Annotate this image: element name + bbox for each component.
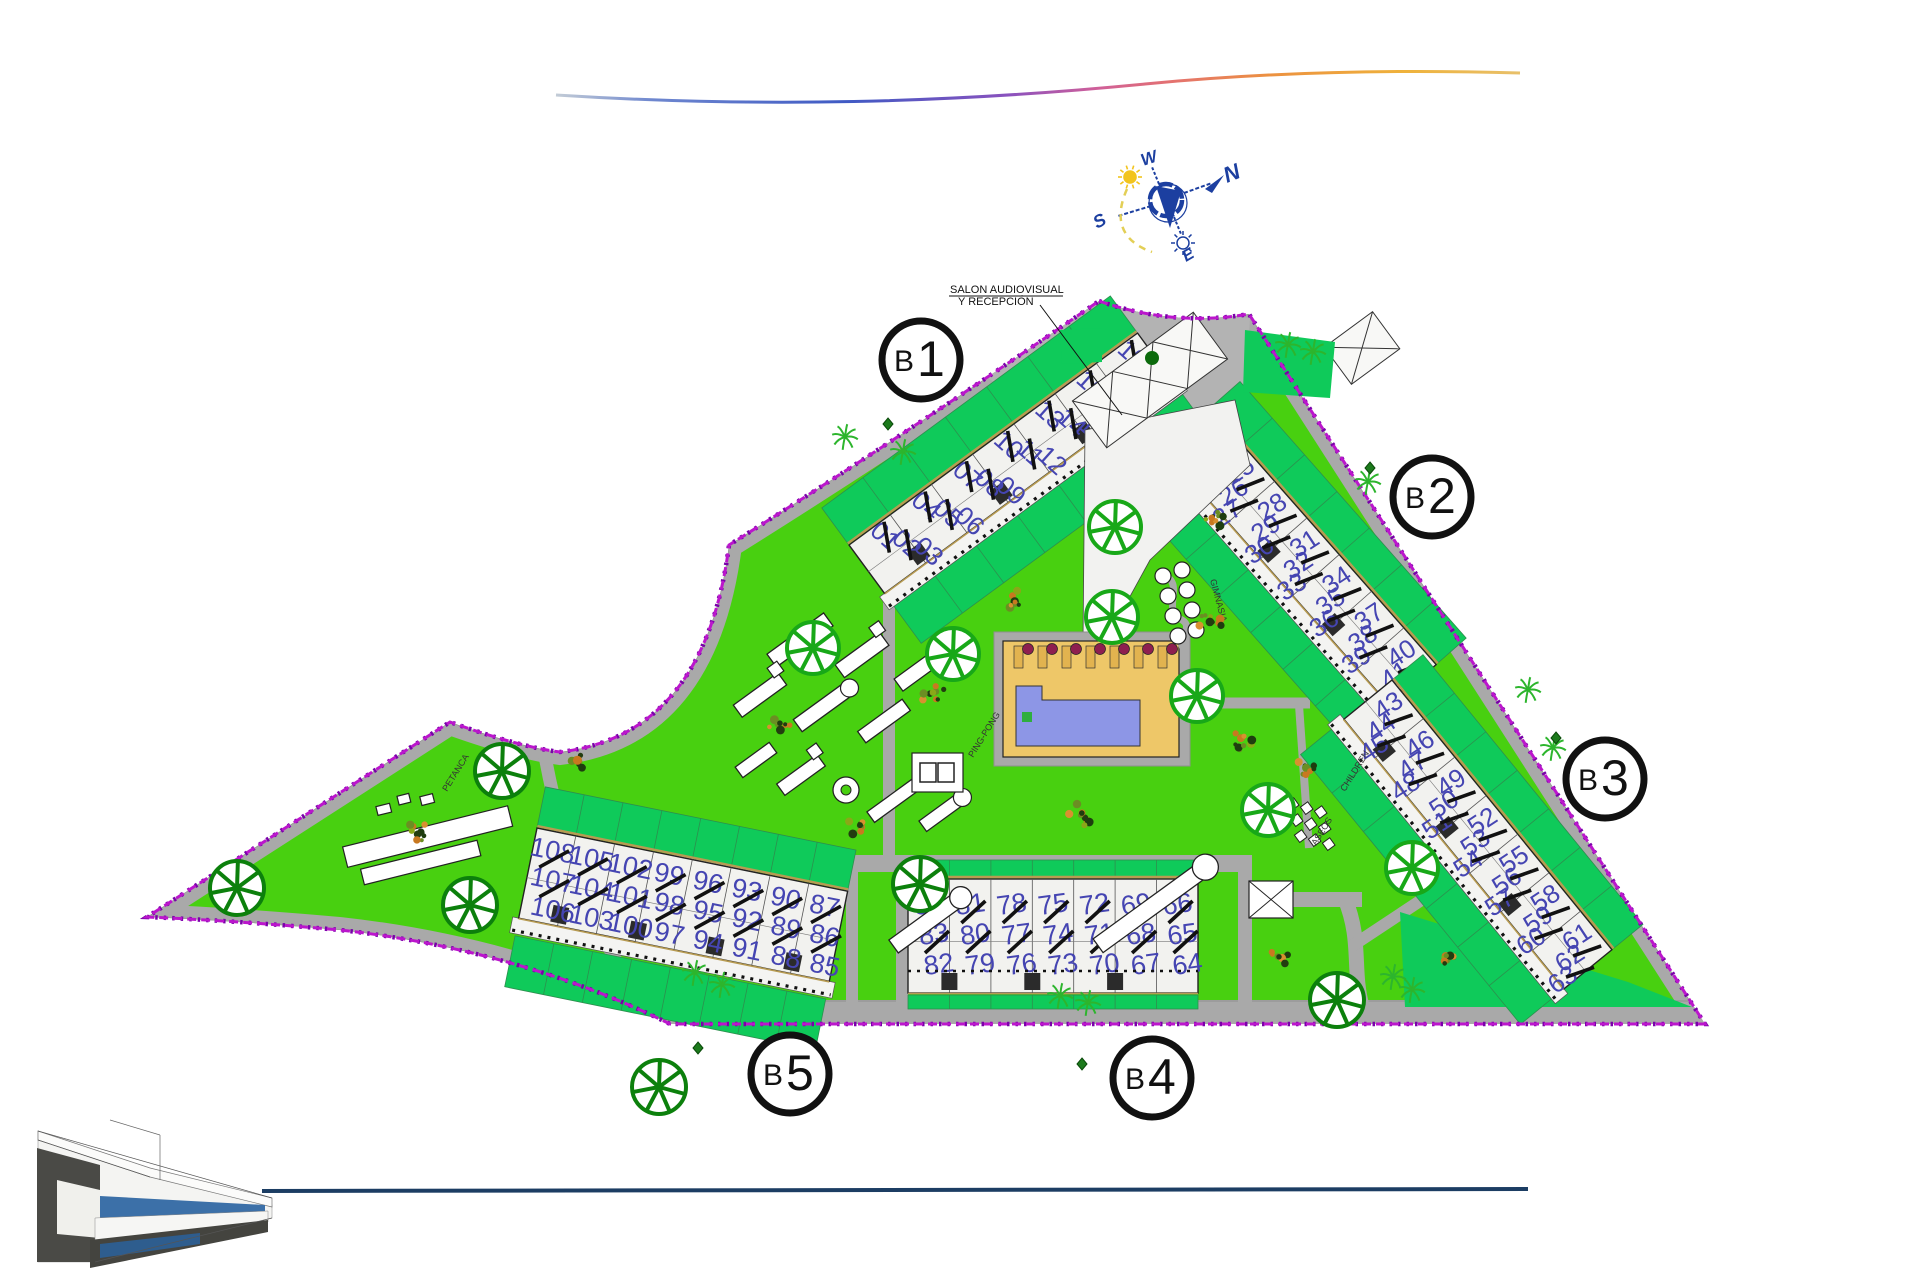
svg-text:B: B: [1578, 764, 1598, 797]
svg-text:2: 2: [1428, 468, 1456, 524]
svg-text:3: 3: [1601, 750, 1629, 806]
svg-text:SALON AUDIOVISUAL: SALON AUDIOVISUAL: [950, 284, 1064, 296]
svg-text:B: B: [894, 345, 914, 378]
svg-text:B: B: [763, 1059, 783, 1092]
svg-text:4: 4: [1148, 1049, 1176, 1105]
svg-text:1: 1: [917, 331, 945, 387]
svg-text:B: B: [1125, 1063, 1145, 1096]
svg-text:5: 5: [786, 1045, 814, 1101]
svg-text:Y RECEPCIÓN: Y RECEPCIÓN: [958, 295, 1034, 308]
svg-text:B: B: [1405, 482, 1425, 515]
